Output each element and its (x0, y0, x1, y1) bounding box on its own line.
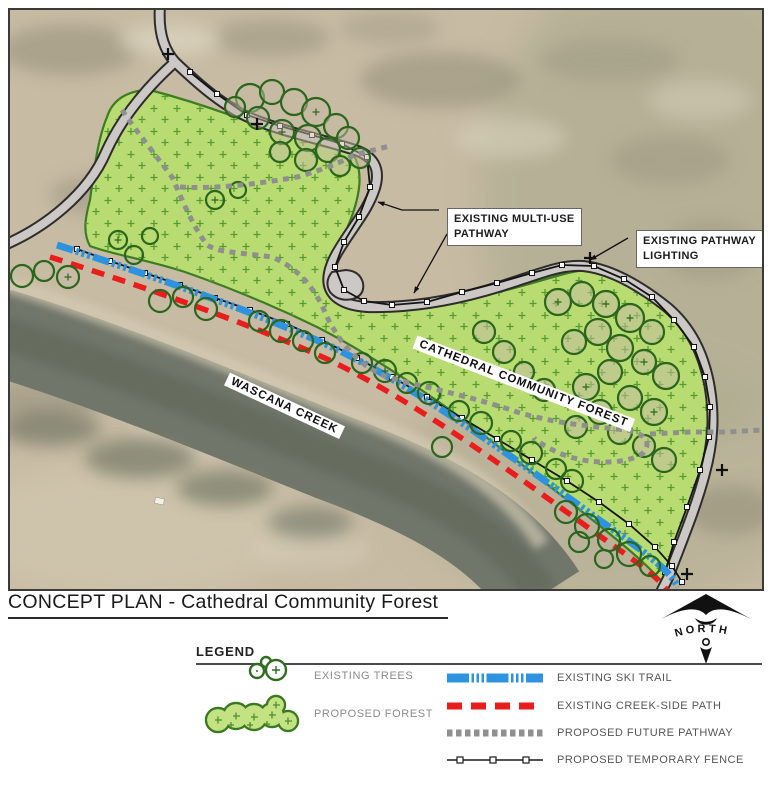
legend-item-proposed-future-pathway: PROPOSED FUTURE PATHWAY (445, 724, 733, 742)
legend-label-proposed-temporary-fence: PROPOSED TEMPORARY FENCE (557, 754, 744, 766)
callout-multi-use-pathway: EXISTING MULTI-USE PATHWAY (447, 208, 582, 246)
map-frame: EXISTING MULTI-USE PATHWAY EXISTING PATH… (8, 8, 764, 591)
page-title: CONCEPT PLAN - Cathedral Community Fores… (8, 591, 448, 619)
map-drawing (10, 10, 762, 589)
proposed-forest-icon (202, 692, 302, 736)
legend-label-existing-creek-side-path: EXISTING CREEK-SIDE PATH (557, 700, 721, 712)
callout-pathway-lighting: EXISTING PATHWAY LIGHTING (636, 230, 763, 268)
pathway-culdesac (327, 270, 363, 300)
legend-item-proposed-forest: PROPOSED FOREST (202, 692, 433, 736)
legend-label-proposed-forest: PROPOSED FOREST (314, 708, 433, 720)
existing-ski-trail-symbol (445, 671, 545, 685)
north-label: NORTH (673, 623, 730, 640)
legend-item-proposed-temporary-fence: PROPOSED TEMPORARY FENCE (445, 751, 744, 769)
legend-label-existing-trees: EXISTING TREES (314, 670, 413, 682)
legend-label-existing-ski-trail: EXISTING SKI TRAIL (557, 672, 672, 684)
callout-multi-use-line2: PATHWAY (454, 227, 575, 242)
callout-multi-use-line1: EXISTING MULTI-USE (454, 212, 575, 227)
proposed-future-pathway-symbol (445, 726, 545, 740)
legend-item-existing-creek-side-path: EXISTING CREEK-SIDE PATH (445, 697, 721, 715)
concept-plan-page: EXISTING MULTI-USE PATHWAY EXISTING PATH… (0, 0, 768, 785)
existing-creek-side-path-symbol (445, 699, 545, 713)
legend: LEGEND EXISTING TREES (196, 642, 762, 780)
svg-text:NORTH: NORTH (673, 623, 730, 640)
legend-item-existing-ski-trail: EXISTING SKI TRAIL (445, 669, 672, 687)
callout-lighting-line1: EXISTING PATHWAY (643, 234, 756, 249)
proposed-temporary-fence-symbol (445, 753, 545, 767)
north-arrow-head (661, 594, 751, 619)
legend-label-proposed-future-pathway: PROPOSED FUTURE PATHWAY (557, 727, 733, 739)
callout-lighting-line2: LIGHTING (643, 249, 756, 264)
